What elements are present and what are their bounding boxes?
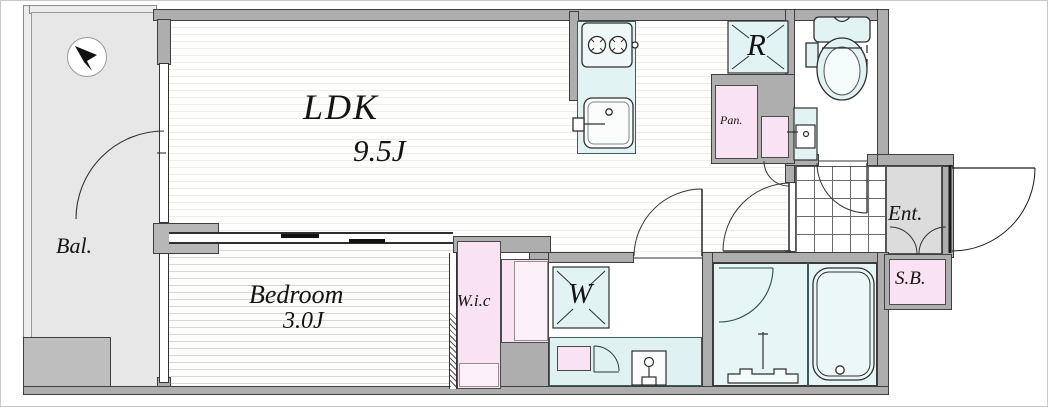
pantry-label: Pan.: [720, 114, 742, 126]
ldk-balcony-window: [159, 63, 169, 223]
washer-label: W: [568, 280, 592, 309]
wall-wic-fill: [499, 341, 549, 392]
bedroom-size-label: 3.0J: [283, 309, 324, 333]
bathroom-divider: [807, 263, 809, 386]
wall-ent-right: [942, 166, 954, 258]
wic-lower-shelf: [459, 363, 499, 387]
north-arrow-circle: [67, 37, 107, 77]
wall-bathroom-top: [702, 252, 889, 263]
ldk-label: LDK: [303, 89, 379, 125]
wall-right-upper: [877, 9, 889, 166]
entrance-tile-floor: [795, 166, 886, 254]
wall-top: [153, 9, 889, 21]
balcony-corner-block: [23, 337, 111, 388]
balcony-label: Bal.: [56, 235, 92, 257]
kitchen-counter: [577, 21, 636, 154]
shoe-box-label: S.B.: [895, 269, 926, 288]
wall-ent-top: [877, 154, 954, 166]
ldk-size-label: 9.5J: [353, 135, 406, 166]
floor-plan: LDK 9.5J Bedroom 3.0J Bal. W.i.c W R Pan…: [0, 0, 1048, 407]
laundry-cabinet: [557, 346, 591, 371]
bathroom-floor: [713, 263, 877, 386]
front-door: [950, 165, 1035, 253]
wall-stub-left-top: [157, 19, 171, 65]
wall-bathroom-left: [702, 252, 713, 394]
partition-panel-1: [281, 234, 319, 238]
bedroom-balcony-window: [159, 253, 169, 383]
partition-panel-2: [349, 239, 385, 243]
toilet-icon: [806, 17, 870, 100]
wic-label: W.i.c: [457, 292, 490, 309]
wic-extension-shelf: [514, 261, 548, 341]
bedroom-label: Bedroom: [249, 282, 343, 308]
refrigerator-label: R: [747, 29, 766, 60]
wic-sliding-door-hatch: [450, 313, 456, 387]
ldk-floor: [169, 21, 787, 254]
pantry-side-cabinet: [761, 116, 789, 158]
entrance-label: Ent.: [888, 203, 922, 224]
